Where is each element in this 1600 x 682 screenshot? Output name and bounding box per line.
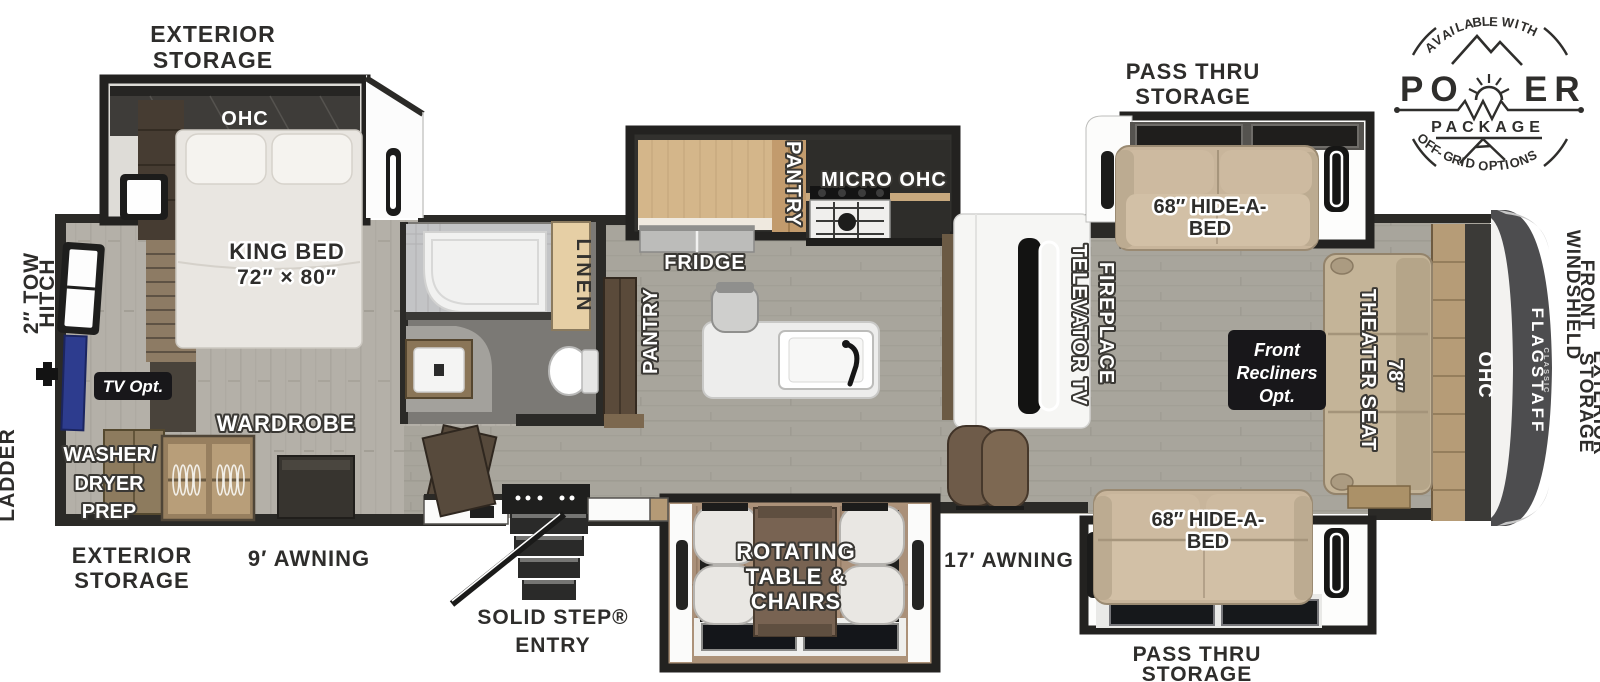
- svg-text:ER: ER: [1524, 70, 1587, 109]
- svg-text:PREP: PREP: [82, 501, 136, 523]
- svg-text:STORAGE: STORAGE: [74, 568, 189, 593]
- svg-text:WINDSHIELD: WINDSHIELD: [1562, 230, 1583, 360]
- svg-text:CHAIRS: CHAIRS: [751, 589, 841, 614]
- svg-text:EXTERIOR: EXTERIOR: [150, 21, 276, 47]
- svg-text:Recliners: Recliners: [1236, 363, 1317, 383]
- svg-text:Opt.: Opt.: [1259, 386, 1295, 406]
- svg-text:PASS THRU: PASS THRU: [1126, 59, 1261, 84]
- svg-text:CLASSIC: CLASSIC: [1542, 348, 1551, 395]
- svg-text:BED: BED: [1187, 531, 1229, 553]
- svg-text:PANTRY: PANTRY: [640, 288, 662, 374]
- svg-text:TELEVATOR TV: TELEVATOR TV: [1068, 245, 1090, 406]
- svg-text:72″ × 80″: 72″ × 80″: [237, 266, 337, 289]
- svg-text:BED: BED: [1189, 218, 1231, 240]
- svg-text:LINEN: LINEN: [572, 239, 594, 314]
- svg-text:FIREPLACE: FIREPLACE: [1095, 262, 1117, 384]
- svg-text:STORAGE: STORAGE: [1575, 353, 1596, 454]
- svg-text:O: O: [1478, 158, 1489, 174]
- svg-text:WARDROBE: WARDROBE: [217, 411, 356, 436]
- svg-text:TV Opt.: TV Opt.: [103, 377, 163, 396]
- svg-text:78″: 78″: [1384, 359, 1406, 391]
- svg-text:THEATER SEAT: THEATER SEAT: [1357, 289, 1379, 451]
- svg-text:SOLID STEP®: SOLID STEP®: [477, 606, 628, 629]
- svg-text:ENTRY: ENTRY: [515, 634, 590, 657]
- svg-text:MICRO OHC: MICRO OHC: [821, 169, 947, 191]
- svg-text:E: E: [1489, 14, 1499, 29]
- svg-text:STORAGE: STORAGE: [153, 47, 273, 73]
- svg-text:TABLE &: TABLE &: [746, 564, 847, 589]
- svg-text:68″ HIDE-A-: 68″ HIDE-A-: [1154, 196, 1267, 218]
- svg-text:PACKAGE: PACKAGE: [1431, 119, 1545, 136]
- svg-text:HITCH: HITCH: [36, 258, 59, 327]
- svg-text:ROTATING: ROTATING: [736, 539, 856, 564]
- svg-text:DRYER: DRYER: [74, 473, 144, 495]
- svg-text:Front: Front: [1254, 340, 1301, 360]
- svg-text:PANTRY: PANTRY: [782, 141, 804, 227]
- svg-text:OHC: OHC: [221, 108, 268, 130]
- svg-text:OHC: OHC: [1474, 351, 1496, 398]
- svg-text:FRIDGE: FRIDGE: [664, 252, 746, 274]
- svg-text:KING BED: KING BED: [229, 239, 345, 264]
- svg-text:68″ HIDE-A-: 68″ HIDE-A-: [1152, 509, 1265, 531]
- svg-text:STORAGE: STORAGE: [1135, 84, 1250, 109]
- svg-text:WASHER/: WASHER/: [63, 444, 157, 466]
- svg-text:17′ AWNING: 17′ AWNING: [944, 549, 1074, 572]
- svg-text:STORAGE: STORAGE: [1142, 663, 1252, 682]
- svg-text:PO: PO: [1400, 70, 1465, 109]
- svg-text:9′ AWNING: 9′ AWNING: [248, 546, 370, 571]
- svg-text:EXTERIOR: EXTERIOR: [72, 543, 192, 568]
- svg-text:LADDER: LADDER: [0, 428, 19, 522]
